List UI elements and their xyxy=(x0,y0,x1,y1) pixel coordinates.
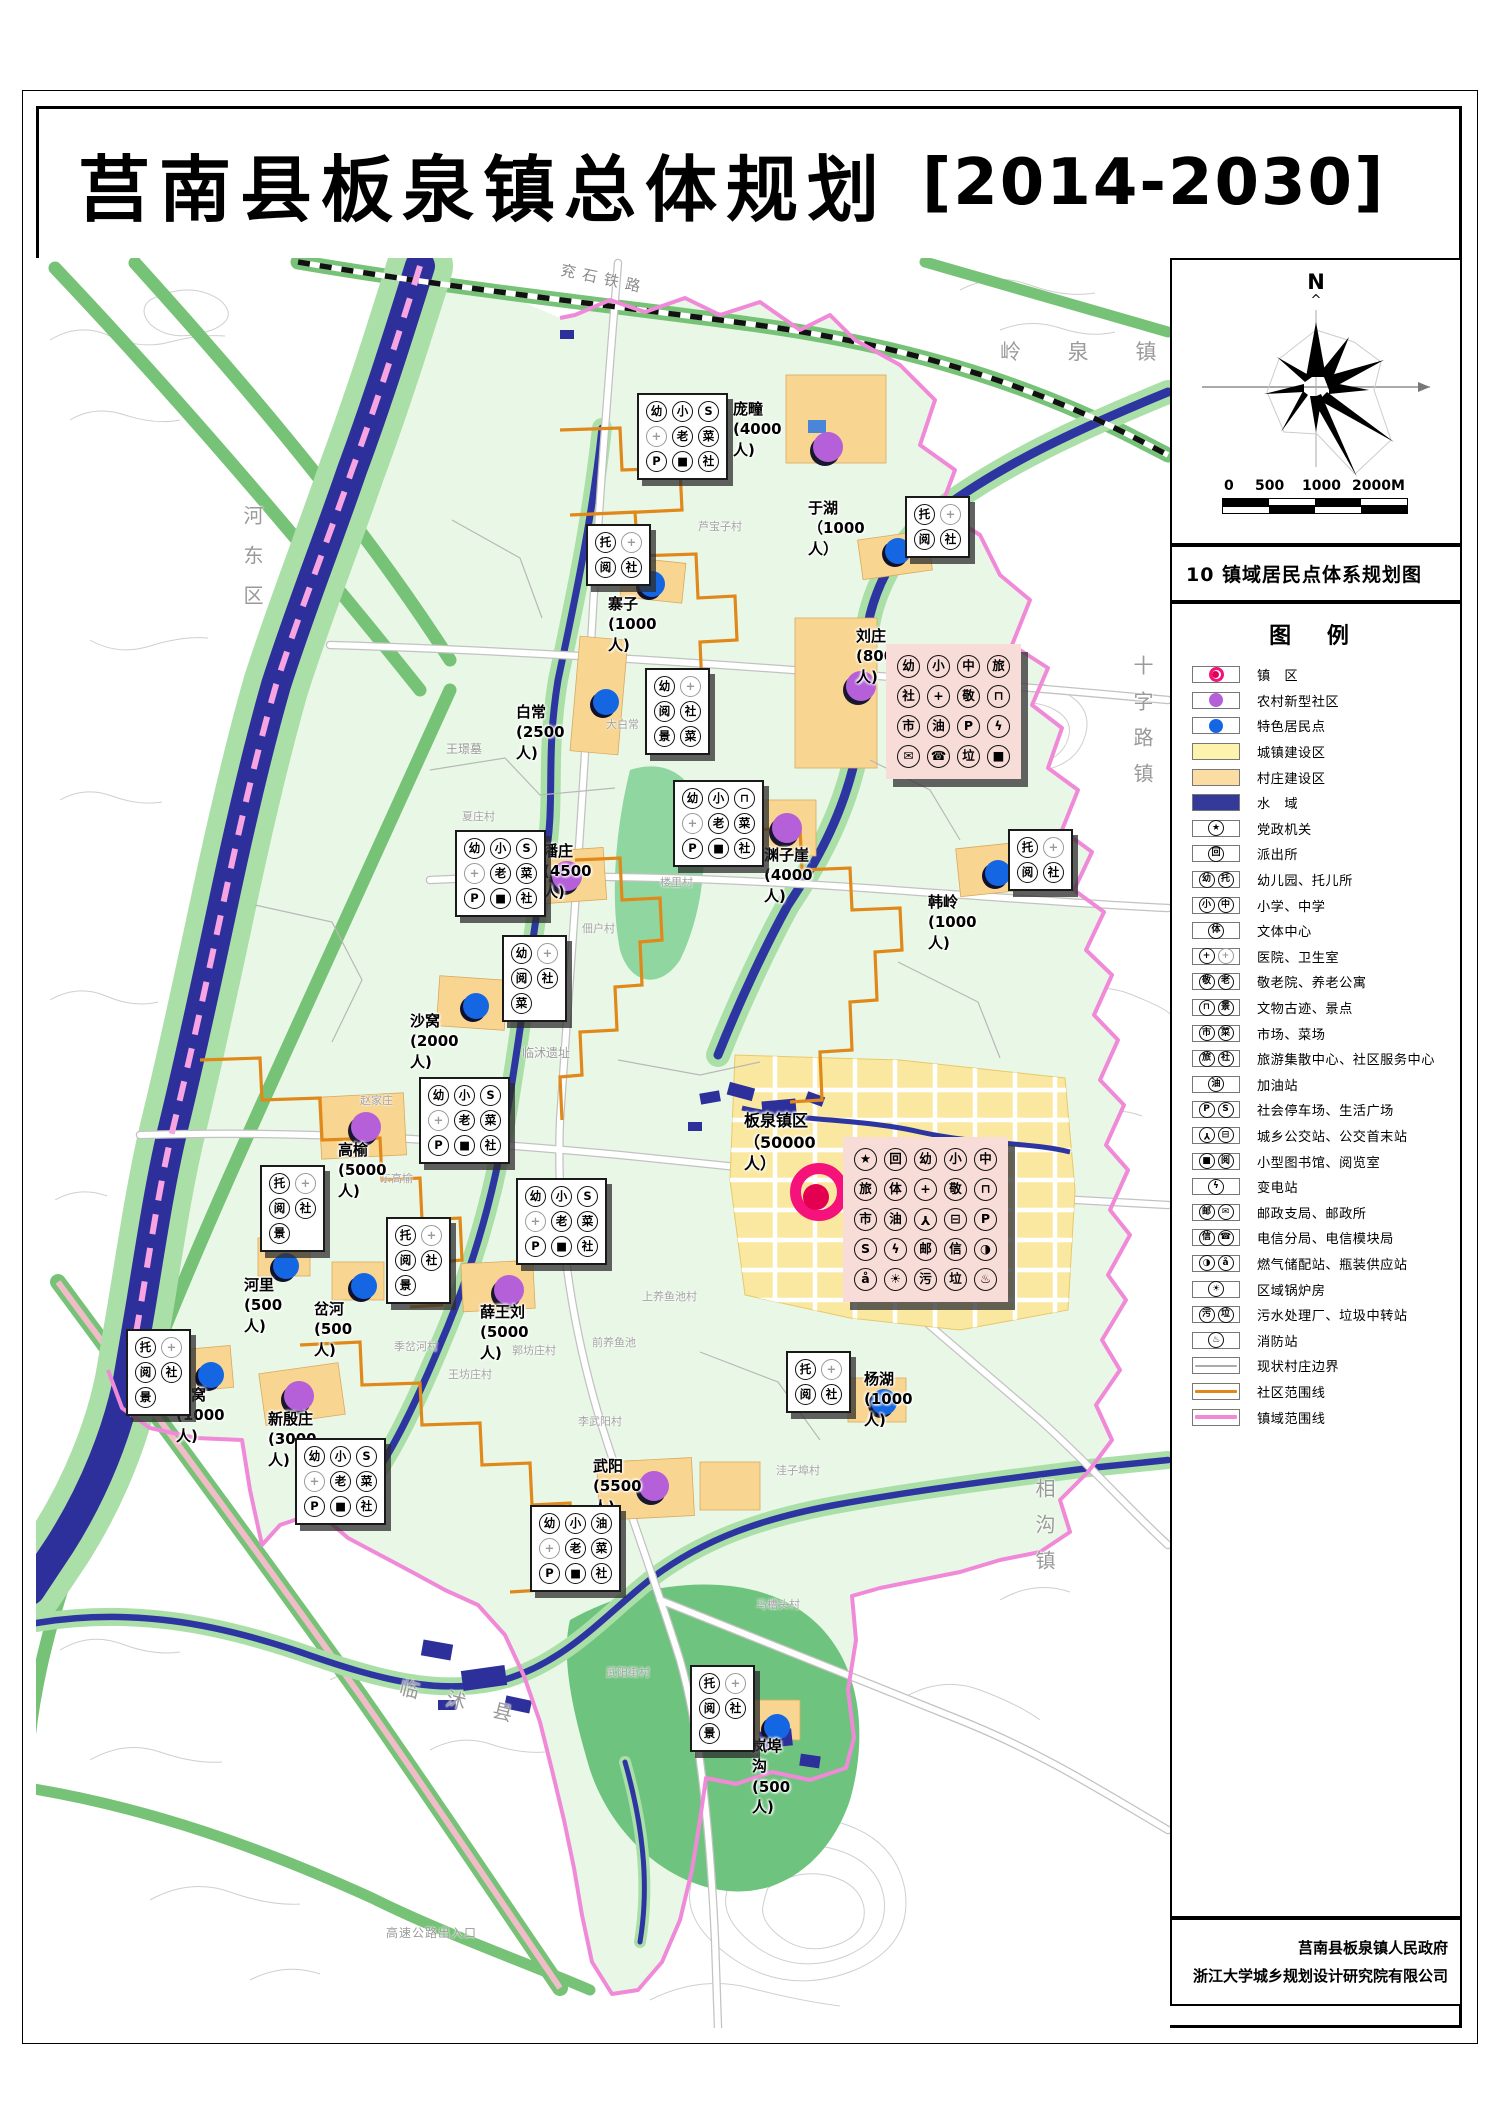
legend-icon-box: 邮✉ xyxy=(1192,1204,1240,1221)
facility-icon-env: ✉ xyxy=(897,745,920,768)
legend-symbol: PS xyxy=(1184,1101,1248,1118)
legend-symbol: 油 xyxy=(1184,1076,1248,1093)
legend-symbol xyxy=(1184,743,1248,760)
legend-label: 敬老院、养老公寓 xyxy=(1257,972,1367,991)
legend-title: 图 例 xyxy=(1172,618,1460,650)
facility-icon-阅: 阅 xyxy=(914,529,935,550)
facility-icon-老: 老 xyxy=(490,863,511,884)
facility-icon-社: 社 xyxy=(725,1698,746,1719)
legend-label: 幼儿园、托儿所 xyxy=(1257,870,1353,889)
legend-label: 社会停车场、生活广场 xyxy=(1257,1100,1394,1119)
facility-icon-托: 托 xyxy=(699,1673,720,1694)
feature-dot-icon xyxy=(1209,719,1223,733)
facility-icon-crossg: + xyxy=(1043,837,1064,858)
legend-item: 村庄建设区 xyxy=(1172,764,1460,790)
facility-icon-社: 社 xyxy=(1043,862,1064,883)
facility-box-zhaizi: 托+阅社 xyxy=(586,524,651,586)
map-label: 季岔河村 xyxy=(394,1338,438,1354)
facility-icon-景: 景 xyxy=(1218,1000,1234,1016)
settlement-label-gaoyu: 高榆(5000人) xyxy=(338,1140,387,1201)
legend-item: ++医院、卫生室 xyxy=(1172,944,1460,970)
facility-icon-P: P xyxy=(525,1236,546,1257)
facility-icon-tel: ☎ xyxy=(927,745,950,768)
legend-label: 市场、菜场 xyxy=(1257,1024,1325,1043)
facility-icon-菜: 菜 xyxy=(577,1211,598,1232)
legend-icon-box: ◑å xyxy=(1192,1255,1240,1272)
facility-icon-S: S xyxy=(356,1446,377,1467)
facility-icon-book: ■ xyxy=(454,1135,475,1156)
legend-item: 邮✉邮政支局、邮政所 xyxy=(1172,1199,1460,1225)
facility-icon-P: P xyxy=(974,1208,997,1231)
legend-icon-box: 污垃 xyxy=(1192,1306,1240,1323)
facility-icon-社: 社 xyxy=(897,685,920,708)
map-label: 高速公路出入口 xyxy=(386,1924,477,1941)
scale-bar-row xyxy=(1222,498,1408,506)
facility-icon-体: 体 xyxy=(884,1178,907,1201)
legend-marker-box xyxy=(1192,717,1240,734)
facility-icon-book: ■ xyxy=(551,1236,572,1257)
facility-icon-S: S xyxy=(516,838,537,859)
facility-icon-中: 中 xyxy=(957,655,980,678)
map-label: 十字路镇 xyxy=(1128,655,1157,799)
facility-icon-污: 污 xyxy=(914,1268,937,1291)
legend-symbol: 污垃 xyxy=(1184,1306,1248,1323)
compass-petals xyxy=(1264,322,1394,477)
legend-symbol xyxy=(1184,717,1248,734)
facility-icon-crossg: + xyxy=(537,943,558,964)
facility-icon-敬: 敬 xyxy=(957,685,980,708)
facility-icon-crossg: + xyxy=(428,1110,449,1131)
legend-label: 电信分局、电信模块局 xyxy=(1257,1228,1394,1247)
facility-icon-菜: 菜 xyxy=(591,1538,612,1559)
legend-rows: 镇 区农村新型社区特色居民点城镇建设区村庄建设区水 域★党政机关回派出所幼托幼儿… xyxy=(1172,662,1460,1430)
legend-label: 城镇建设区 xyxy=(1257,742,1325,761)
legend-item: PS社会停车场、生活广场 xyxy=(1172,1097,1460,1123)
facility-icon-菜: 菜 xyxy=(698,426,719,447)
facility-icon-幼: 幼 xyxy=(654,676,675,697)
settlement-label-zhaizi: 寨子(1000人) xyxy=(608,594,657,655)
facility-icon-垃: 垃 xyxy=(1218,1307,1234,1323)
facility-icon-crossg: + xyxy=(464,863,485,884)
legend-symbol: ⊓景 xyxy=(1184,999,1248,1016)
facility-icon-社: 社 xyxy=(1218,1051,1234,1067)
facility-icon-P: P xyxy=(957,715,980,738)
facility-icon-阅: 阅 xyxy=(595,557,616,578)
facility-icon-bus: ⊟ xyxy=(1218,1127,1234,1143)
settlement-label-banquan: 板泉镇区 （50000人） xyxy=(744,1110,816,1175)
facility-icon-gas: ◑ xyxy=(974,1238,997,1261)
facility-icon-托: 托 xyxy=(395,1225,416,1246)
facility-box-xuewangliu: 幼小S+老菜P■社 xyxy=(516,1178,607,1265)
facility-icon-小: 小 xyxy=(927,655,950,678)
facility-icon-crossg: + xyxy=(621,532,642,553)
legend-icon-box: 体 xyxy=(1192,922,1240,939)
map-label: 李武阳村 xyxy=(578,1413,622,1429)
legend-symbol xyxy=(1184,1357,1248,1374)
facility-icon-bolt: ϟ xyxy=(884,1238,907,1261)
facility-icon-邮: 邮 xyxy=(914,1238,937,1261)
facility-box-pangtuan: 幼小S+老菜P■社 xyxy=(637,393,728,480)
legend-label: 小学、中学 xyxy=(1257,896,1325,915)
legend-panel: 图 例 镇 区农村新型社区特色居民点城镇建设区村庄建设区水 域★党政机关回派出所… xyxy=(1170,602,1462,1918)
legend-label: 邮政支局、邮政所 xyxy=(1257,1203,1367,1222)
facility-icon-阅: 阅 xyxy=(511,968,532,989)
facility-icon-幼: 幼 xyxy=(646,401,667,422)
facility-icon-bottle: å xyxy=(1218,1255,1234,1271)
legend-item: Y⊟城乡公交站、公交首末站 xyxy=(1172,1123,1460,1149)
facility-icon-托: 托 xyxy=(795,1359,816,1380)
settlement-label-panzhuang: 潘庄(4500人) xyxy=(543,841,592,902)
town-marker-core xyxy=(1212,671,1219,678)
legend-label: 党政机关 xyxy=(1257,819,1312,838)
legend-icon-box: PS xyxy=(1192,1101,1240,1118)
legend-symbol: ★ xyxy=(1184,820,1248,837)
facility-icon-中: 中 xyxy=(974,1148,997,1171)
legend-label: 村庄建设区 xyxy=(1257,768,1325,787)
scale-bar: 0 500 1000 2000M xyxy=(1222,478,1412,526)
facility-icon-信: 信 xyxy=(944,1238,967,1261)
facility-icon-社: 社 xyxy=(161,1362,182,1383)
facility-icon-社: 社 xyxy=(537,968,558,989)
legend-item: ★党政机关 xyxy=(1172,816,1460,842)
facility-icon-小: 小 xyxy=(672,401,693,422)
facility-icon-book: ■ xyxy=(565,1563,586,1584)
facility-box-yuanziya: 幼小⊓+老菜P■社 xyxy=(673,780,764,867)
settlement-label-lanbugou: 岚埠沟(500人) xyxy=(752,1736,790,1817)
facility-icon-shield: 回 xyxy=(1208,846,1224,862)
legend-icon-box: ☀ xyxy=(1192,1281,1240,1298)
facility-box-wuyang: 幼小油+老菜P■社 xyxy=(530,1505,621,1592)
facility-icon-小: 小 xyxy=(944,1148,967,1171)
facility-icon-crossg: + xyxy=(725,1673,746,1694)
legend-icon-box: ϟ xyxy=(1192,1178,1240,1195)
facility-icon-老: 老 xyxy=(565,1538,586,1559)
feature-dot-baichang xyxy=(593,689,619,715)
facility-icon-污: 污 xyxy=(1199,1307,1215,1323)
facility-icon-bolt: ϟ xyxy=(1208,1179,1224,1195)
legend-line xyxy=(1195,1390,1237,1393)
facility-icon-bus: ⊟ xyxy=(944,1208,967,1231)
facility-icon-fire: ♨ xyxy=(1208,1332,1224,1348)
facility-box-banquan: ★回幼小中旅体+敬⊓市油Y⊟PSϟ邮信◑å☀污垃♨ xyxy=(843,1137,1008,1302)
map-label: 马槽头村 xyxy=(756,1596,800,1612)
legend-item: 镇 区 xyxy=(1172,662,1460,688)
facility-icon-菜: 菜 xyxy=(680,726,701,747)
legend-icon-box: 幼托 xyxy=(1192,871,1240,888)
legend-item: 特色居民点 xyxy=(1172,713,1460,739)
facility-icon-油: 油 xyxy=(927,715,950,738)
facility-icon-S: S xyxy=(1218,1102,1234,1118)
facility-icon-crossg: + xyxy=(682,813,703,834)
facility-icon-阅: 阅 xyxy=(1017,862,1038,883)
facility-icon-旅: 旅 xyxy=(854,1178,877,1201)
legend-icon-box: 市菜 xyxy=(1192,1025,1240,1042)
facility-icon-book: ■ xyxy=(708,838,729,859)
facility-box-yanghu: 托+阅社 xyxy=(786,1351,851,1413)
facility-icon-幼: 幼 xyxy=(682,788,703,809)
legend-item: 市菜市场、菜场 xyxy=(1172,1020,1460,1046)
facility-icon-菜: 菜 xyxy=(734,813,755,834)
facility-box-yuhu: 托+阅社 xyxy=(905,496,970,558)
facility-icon-社: 社 xyxy=(821,1384,842,1405)
legend-label: 文物古迹、景点 xyxy=(1257,998,1353,1017)
facility-icon-star: ★ xyxy=(854,1148,877,1171)
map-label: 上养鱼池村 xyxy=(642,1288,697,1304)
legend-color-swatch xyxy=(1192,794,1240,811)
facility-icon-book: ■ xyxy=(330,1496,351,1517)
map-label: 赵家庄 xyxy=(360,1092,393,1108)
facility-icon-社: 社 xyxy=(421,1250,442,1271)
legend-icon-box: ⊓景 xyxy=(1192,999,1240,1016)
compass-rose xyxy=(1172,282,1460,492)
legend-item: 油加油站 xyxy=(1172,1072,1460,1098)
legend-marker-box xyxy=(1192,692,1240,709)
facility-icon-boiler: ☀ xyxy=(884,1268,907,1291)
legend-label: 派出所 xyxy=(1257,844,1298,863)
compass-panel: N ^ 0 500 1000 2000M xyxy=(1170,258,1462,545)
facility-icon-P: P xyxy=(1199,1102,1215,1118)
facility-icon-小: 小 xyxy=(551,1186,572,1207)
facility-icon-社: 社 xyxy=(621,557,642,578)
facility-icon-S: S xyxy=(698,401,719,422)
legend-label: 特色居民点 xyxy=(1257,716,1325,735)
facility-icon-crossg: + xyxy=(525,1211,546,1232)
legend-label: 城乡公交站、公交首末站 xyxy=(1257,1126,1408,1145)
legend-symbol: 邮✉ xyxy=(1184,1204,1248,1221)
facility-icon-社: 社 xyxy=(480,1135,501,1156)
legend-item: 水 域 xyxy=(1172,790,1460,816)
legend-item: 镇域范围线 xyxy=(1172,1404,1460,1430)
facility-icon-社: 社 xyxy=(577,1236,598,1257)
facility-icon-book: ■ xyxy=(987,745,1010,768)
legend-label: 文体中心 xyxy=(1257,921,1312,940)
facility-icon-旅: 旅 xyxy=(1199,1051,1215,1067)
facility-icon-景: 景 xyxy=(395,1275,416,1296)
facility-icon-crossg: + xyxy=(161,1337,182,1358)
facility-icon-菜: 菜 xyxy=(356,1471,377,1492)
legend-label: 水 域 xyxy=(1257,793,1298,812)
facility-icon-book: ■ xyxy=(490,888,511,909)
legend-symbol: 信☎ xyxy=(1184,1229,1248,1246)
facility-icon-社: 社 xyxy=(698,451,719,472)
map-label: 王璟墓 xyxy=(446,740,482,757)
facility-icon-老: 老 xyxy=(454,1110,475,1131)
map-label: 夏庄村 xyxy=(462,808,495,824)
facility-icon-阅: 阅 xyxy=(795,1384,816,1405)
legend-symbol: 小中 xyxy=(1184,897,1248,914)
facility-box-shawo: 幼+阅社菜 xyxy=(502,935,567,1022)
facility-icon-小: 小 xyxy=(1199,897,1215,913)
legend-label: 旅游集散中心、社区服务中心 xyxy=(1257,1049,1435,1068)
facility-icon-crossg: + xyxy=(539,1538,560,1559)
facility-icon-P: P xyxy=(646,451,667,472)
facility-icon-老: 老 xyxy=(708,813,729,834)
facility-icon-油: 油 xyxy=(884,1208,907,1231)
plan-period: [2014-2030] xyxy=(888,146,1385,220)
facility-icon-敬: 敬 xyxy=(944,1178,967,1201)
legend-symbol: ♨ xyxy=(1184,1332,1248,1349)
legend-item: 污垃污水处理厂、垃圾中转站 xyxy=(1172,1302,1460,1328)
community-dot-gaoyu xyxy=(351,1112,381,1142)
facility-icon-小: 小 xyxy=(708,788,729,809)
facility-icon-市: 市 xyxy=(1199,1025,1215,1041)
feature-dot-chahe xyxy=(351,1273,377,1299)
facility-icon-S: S xyxy=(480,1085,501,1106)
settlement-label-chahe: 岔河(500人) xyxy=(314,1299,352,1360)
facility-icon-景: 景 xyxy=(135,1387,156,1408)
facility-icon-阅: 阅 xyxy=(654,701,675,722)
map-label: 洼子埠村 xyxy=(776,1462,820,1478)
legend-marker-box xyxy=(1192,666,1240,683)
legend-label: 镇 区 xyxy=(1257,665,1298,684)
legend-color-swatch xyxy=(1192,769,1240,786)
map-label: 武阳街村 xyxy=(606,1664,650,1680)
facility-icon-体: 体 xyxy=(1208,923,1224,939)
facility-icon-阅: 阅 xyxy=(135,1362,156,1383)
facility-icon-cross: + xyxy=(1199,948,1215,964)
facility-icon-S: S xyxy=(854,1238,877,1261)
facility-icon-cross: + xyxy=(927,685,950,708)
facility-icon-油: 油 xyxy=(591,1513,612,1534)
legend-label: 燃气储配站、瓶装供应站 xyxy=(1257,1254,1408,1273)
legend-label: 医院、卫生室 xyxy=(1257,947,1339,966)
facility-icon-crossg: + xyxy=(295,1173,316,1194)
facility-icon-mon: ⊓ xyxy=(1199,1000,1215,1016)
scale-tick: 1000 xyxy=(1302,478,1341,494)
facility-icon-幼: 幼 xyxy=(304,1446,325,1467)
community-dot-xuewangliu xyxy=(494,1275,524,1305)
community-dot-yuanziya xyxy=(772,813,802,843)
facility-icon-景: 景 xyxy=(654,726,675,747)
facility-icon-旅: 旅 xyxy=(987,655,1010,678)
legend-label: 现状村庄边界 xyxy=(1257,1356,1339,1375)
facility-icon-社: 社 xyxy=(940,529,961,550)
legend-icon-box: ++ xyxy=(1192,948,1240,965)
legend-line-box xyxy=(1192,1383,1240,1400)
legend-icon-box: 敬老 xyxy=(1192,973,1240,990)
facility-icon-油: 油 xyxy=(1208,1076,1224,1092)
facility-icon-托: 托 xyxy=(914,504,935,525)
facility-icon-托: 托 xyxy=(135,1337,156,1358)
legend-icon-box: 旅社 xyxy=(1192,1050,1240,1067)
title-bar: 莒南县板泉镇总体规划 [2014-2030] xyxy=(40,108,1460,258)
plan-title: 莒南县板泉镇总体规划 xyxy=(40,131,888,236)
facility-icon-fire: ♨ xyxy=(974,1268,997,1291)
school-block xyxy=(808,420,826,433)
facility-icon-社: 社 xyxy=(295,1198,316,1219)
map-number-panel: 10 镇域居民点体系规划图 xyxy=(1170,545,1462,602)
facility-icon-crossg: + xyxy=(304,1471,325,1492)
facility-icon-crossg: + xyxy=(821,1359,842,1380)
legend-label: 区域锅炉房 xyxy=(1257,1280,1325,1299)
map-number-title: 10 镇域居民点体系规划图 xyxy=(1172,560,1422,587)
facility-icon-P: P xyxy=(682,838,703,859)
legend-icon-box: 信☎ xyxy=(1192,1229,1240,1246)
facility-icon-wheel: Y xyxy=(1199,1127,1215,1143)
legend-item: ♨消防站 xyxy=(1172,1327,1460,1353)
facility-icon-mon: ⊓ xyxy=(734,788,755,809)
facility-icon-垃: 垃 xyxy=(957,745,980,768)
facility-icon-幼: 幼 xyxy=(525,1186,546,1207)
north-caret: ^ xyxy=(1304,293,1328,308)
legend-item: ◑å燃气储配站、瓶装供应站 xyxy=(1172,1251,1460,1277)
legend-icon-box: 油 xyxy=(1192,1076,1240,1093)
map-label: 芦宝子村 xyxy=(698,518,742,534)
legend-icon-box: 小中 xyxy=(1192,897,1240,914)
facility-icon-老: 老 xyxy=(1218,974,1234,990)
map-label: 大白常 xyxy=(606,716,639,732)
facility-icon-小: 小 xyxy=(330,1446,351,1467)
legend-item: ϟ变电站 xyxy=(1172,1174,1460,1200)
facility-icon-中: 中 xyxy=(1218,897,1234,913)
north-label: N xyxy=(1304,270,1328,294)
credits-panel: 莒南县板泉镇人民政府 浙江大学城乡规划设计研究院有限公司 xyxy=(1170,1918,1462,2006)
legend-symbol xyxy=(1184,1409,1248,1426)
facility-icon-小: 小 xyxy=(565,1513,586,1534)
credit-design-institute: 浙江大学城乡规划设计研究院有限公司 xyxy=(1193,1962,1448,1991)
facility-icon-敬: 敬 xyxy=(1199,974,1215,990)
facility-icon-社: 社 xyxy=(734,838,755,859)
settlement-label-heli: 河里(500人) xyxy=(244,1275,282,1336)
settlement-label-shawo: 沙窝(2000人) xyxy=(410,1011,459,1072)
facility-box-hanling: 托+阅社 xyxy=(1008,829,1073,891)
facility-box-baichang: 幼+阅社景菜 xyxy=(645,668,710,755)
facility-icon-社: 社 xyxy=(591,1563,612,1584)
community-dot-pangtuan xyxy=(813,432,843,462)
legend-label: 农村新型社区 xyxy=(1257,691,1339,710)
facility-icon-信: 信 xyxy=(1199,1230,1215,1246)
facility-icon-阅: 阅 xyxy=(1218,1153,1234,1169)
settlement-label-yuhu: 于湖（1000人） xyxy=(808,498,865,559)
town-district-core xyxy=(803,1184,829,1210)
legend-item: ☀区域锅炉房 xyxy=(1172,1276,1460,1302)
town-marker-icon xyxy=(1209,667,1224,682)
legend-line xyxy=(1195,1365,1237,1367)
map-label: 岭 泉 镇 xyxy=(1000,336,1176,366)
facility-box-liuzhuang: 幼小中旅社+敬⊓市油Pϟ✉☎垃■ xyxy=(886,644,1021,779)
legend-symbol: ☀ xyxy=(1184,1281,1248,1298)
legend-icon-box: Y⊟ xyxy=(1192,1127,1240,1144)
facility-icon-P: P xyxy=(464,888,485,909)
legend-label: 变电站 xyxy=(1257,1177,1298,1196)
scale-bar-row xyxy=(1222,506,1408,514)
facility-icon-幼: 幼 xyxy=(428,1085,449,1106)
facility-icon-bottle: å xyxy=(854,1268,877,1291)
map-label: 临沭遗址 xyxy=(522,1044,570,1061)
facility-icon-幼: 幼 xyxy=(539,1513,560,1534)
legend-symbol: 体 xyxy=(1184,922,1248,939)
facility-icon-crossg: + xyxy=(421,1225,442,1246)
community-dot-wuyang xyxy=(639,1471,669,1501)
settlement-label-baichang: 白常(2500人) xyxy=(516,702,565,763)
legend-item: 回派出所 xyxy=(1172,841,1460,867)
facility-icon-托: 托 xyxy=(1017,837,1038,858)
legend-icon-box: ■阅 xyxy=(1192,1153,1240,1170)
facility-icon-wheel: Y xyxy=(914,1208,937,1231)
facility-icon-P: P xyxy=(539,1563,560,1584)
facility-icon-菜: 菜 xyxy=(511,993,532,1014)
facility-icon-cross: + xyxy=(914,1178,937,1201)
legend-symbol xyxy=(1184,794,1248,811)
legend-symbol xyxy=(1184,1383,1248,1400)
settlement-label-yanghu: 杨湖 (1000人) xyxy=(864,1369,913,1430)
legend-item: 城镇建设区 xyxy=(1172,739,1460,765)
facility-icon-boiler: ☀ xyxy=(1208,1281,1224,1297)
legend-icon-box: ♨ xyxy=(1192,1332,1240,1349)
facility-box-gaoyu: 幼小S+老菜P■社 xyxy=(419,1077,510,1164)
facility-icon-市: 市 xyxy=(854,1208,877,1231)
legend-symbol: 回 xyxy=(1184,845,1248,862)
